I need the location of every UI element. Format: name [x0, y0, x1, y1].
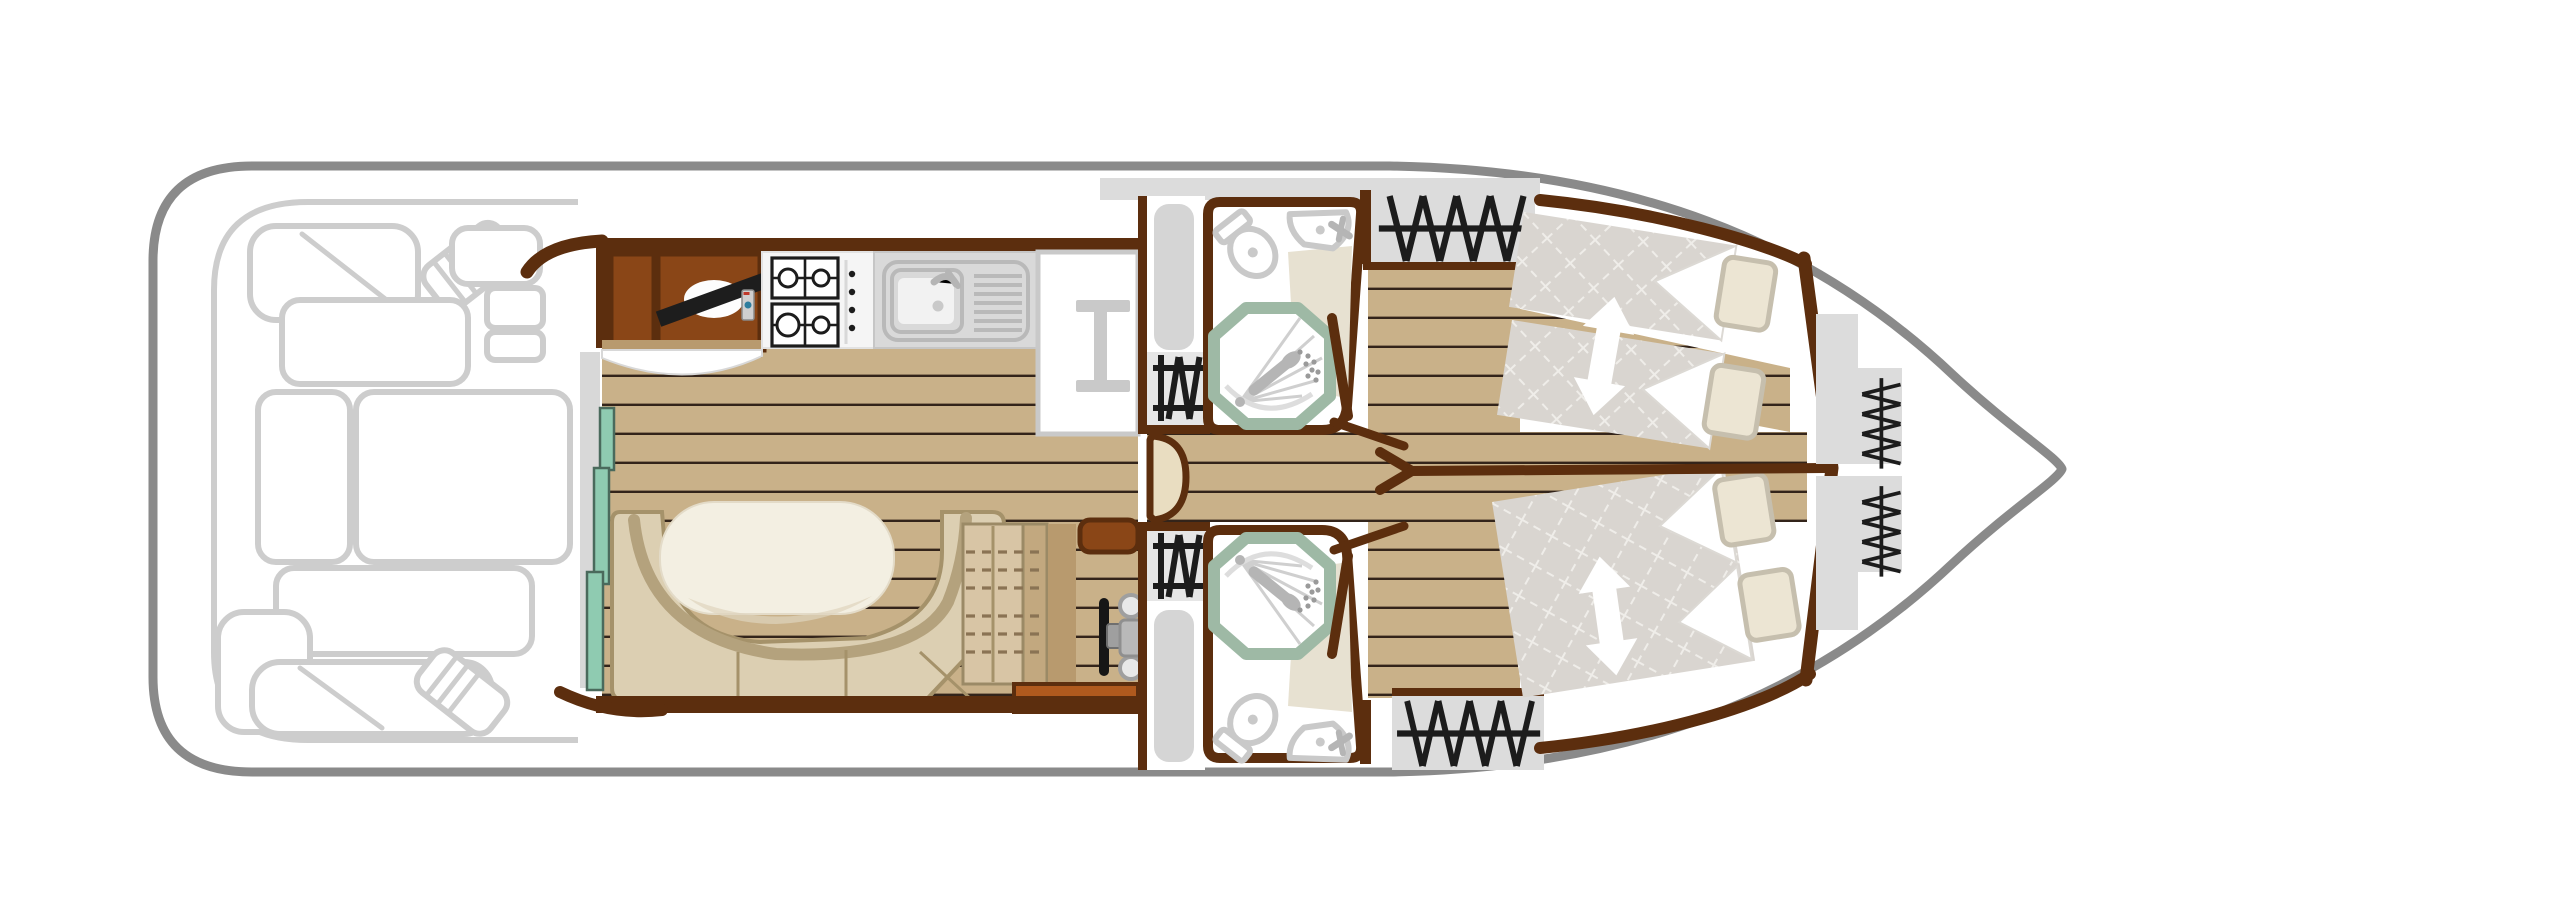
sliding-door-panel — [600, 408, 614, 470]
cabin-starboard-floor — [1368, 522, 1520, 698]
entry-wall — [1138, 522, 1210, 531]
shower-icon — [1214, 538, 1330, 654]
deck-sun-pad — [276, 568, 532, 654]
starboard-side-entry — [1138, 522, 1210, 770]
side-door — [1154, 610, 1194, 762]
side-door — [1154, 204, 1194, 350]
entry-wall — [1138, 531, 1147, 770]
wardrobe-wall — [1363, 262, 1535, 270]
sliding-door-panel — [587, 572, 603, 690]
steering-console — [487, 288, 543, 328]
saloon-bottom-wall — [596, 696, 1147, 713]
bed-pillow — [1739, 568, 1801, 641]
cabin-port-floor — [1368, 262, 1520, 434]
fridge-icon — [1038, 252, 1138, 434]
deck-sun-pad — [356, 392, 570, 562]
dinette-table — [660, 502, 894, 614]
tv-cabinet — [602, 252, 772, 375]
cabin-wall — [1360, 190, 1371, 264]
wardrobe-wall — [1392, 688, 1544, 696]
storage-chest — [963, 524, 1076, 684]
entry-wall — [1138, 196, 1147, 434]
sliding-door-panel — [594, 468, 609, 584]
remote-icon — [742, 290, 754, 320]
central-wall — [1412, 468, 1826, 471]
bed-pillow — [1703, 364, 1765, 439]
shower-icon — [1214, 308, 1330, 424]
deck-sun-pad — [282, 300, 468, 384]
corridor-door — [1150, 436, 1186, 520]
boat-floor-plan — [0, 0, 2555, 910]
bed-pillow — [1713, 473, 1775, 546]
cabin-wall — [1360, 700, 1371, 764]
entry-wall — [1138, 425, 1210, 434]
bed-pillow — [1715, 256, 1777, 331]
helm-console — [1080, 520, 1138, 552]
dinette — [612, 502, 1004, 700]
port-side-entry — [1138, 196, 1210, 434]
steering-console-lower — [487, 332, 543, 360]
deck-sun-pad — [258, 392, 350, 562]
boat-floor-plan-page — [0, 0, 2555, 910]
